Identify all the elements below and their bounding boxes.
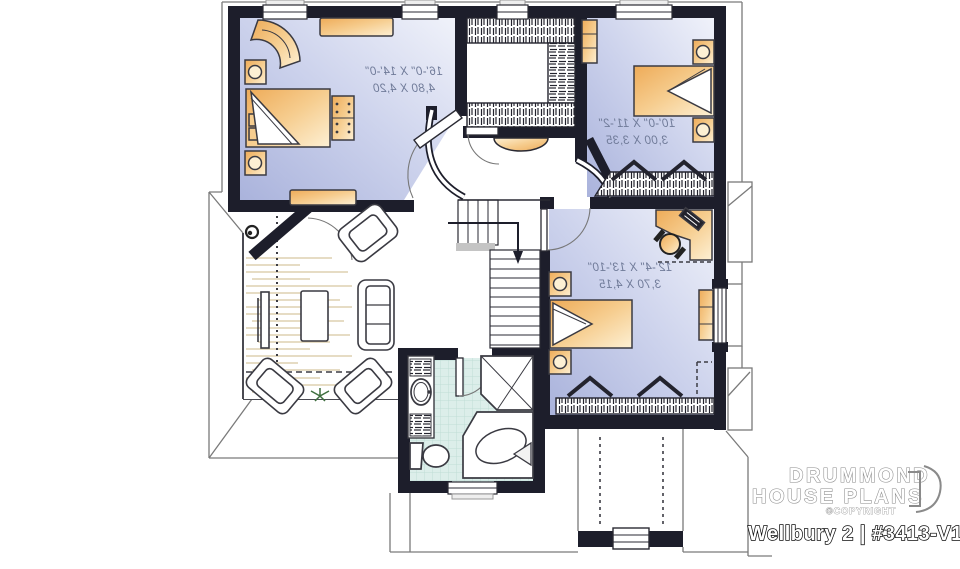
bookshelf xyxy=(699,290,713,340)
stair-landing xyxy=(456,243,495,251)
bedroom2-dim-imperial: 10'-0" X 11'-2" xyxy=(598,118,675,130)
copyright-text: ©COPYRIGHT xyxy=(826,506,896,516)
shower xyxy=(481,356,533,410)
company-name-line1: DRUMMOND xyxy=(789,465,930,487)
master-dim-imperial: 16'-0" X 14'-0" xyxy=(365,66,443,78)
coffee-table xyxy=(301,291,328,341)
bathtub xyxy=(463,412,533,478)
vanity-sink xyxy=(408,356,434,438)
walkin-door-leaf xyxy=(466,127,498,135)
dormer-window xyxy=(613,528,649,549)
wall-sconce xyxy=(494,138,548,151)
drummond-logo: DRUMMOND HOUSE PLANS ©COPYRIGHT Wellbury… xyxy=(748,465,960,545)
column-symbol xyxy=(246,226,258,238)
floor-plan-svg: 16'-0" X 14'-0" 4,80 X 4,20 10'-0" X 11'… xyxy=(0,0,960,569)
bedroom3-dim-imperial: 12'-4" X 13'-10" xyxy=(587,262,671,274)
master-dim-metric: 4,80 X 4,20 xyxy=(373,83,435,95)
tv xyxy=(261,292,269,348)
bathroom-door-leaf xyxy=(456,358,463,396)
company-name-line2: HOUSE PLANS xyxy=(752,486,924,508)
bedroom2-dim-metric: 3,00 X 3,35 xyxy=(606,135,668,147)
dresser xyxy=(320,18,393,36)
bedroom3-bay-window xyxy=(712,279,742,352)
bedroom3-dim-metric: 3,70 X 4,15 xyxy=(599,279,661,291)
sofa xyxy=(358,280,394,350)
floor-plan-page: 16'-0" X 14'-0" 4,80 X 4,20 10'-0" X 11'… xyxy=(0,0,960,569)
bookshelf xyxy=(582,20,597,63)
toilet xyxy=(410,443,449,469)
plan-title: Wellbury 2 | #3413-V1 xyxy=(748,523,960,545)
bedroom3-door-leaf xyxy=(541,209,547,251)
low-dresser xyxy=(290,190,356,205)
